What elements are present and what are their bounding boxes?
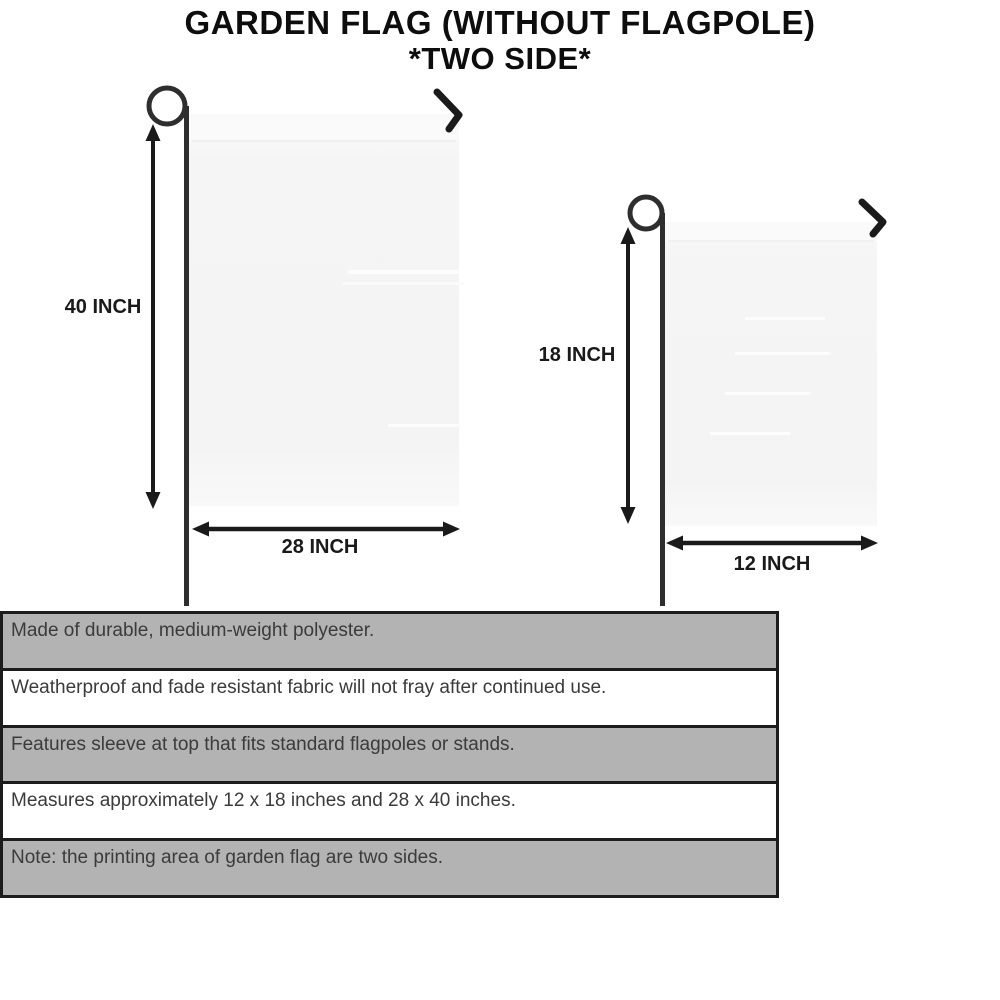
small-flag-canvas <box>665 222 877 526</box>
small-flag-height-arrow <box>621 227 636 524</box>
small-flag-width-arrow <box>666 536 878 551</box>
large-flag-assembly <box>146 88 466 606</box>
small-flag-width-label: 12 INCH <box>702 553 842 576</box>
small-flagpole-loop <box>630 197 662 229</box>
garden-flag-infographic: GARDEN FLAG (WITHOUT FLAGPOLE) *TWO SIDE… <box>0 0 1000 1000</box>
feature-row-weatherproof: Weatherproof and fade resistant fabric w… <box>3 671 776 728</box>
feature-row-note: Note: the printing area of garden flag a… <box>3 841 776 895</box>
small-flag-sleeve <box>665 222 877 242</box>
small-flag-assembly <box>621 197 884 606</box>
large-flag-sleeve <box>189 114 459 140</box>
feature-row-material: Made of durable, medium-weight polyester… <box>3 614 776 671</box>
feature-row-measurements: Measures approximately 12 x 18 inches an… <box>3 784 776 841</box>
large-flag-width-label: 28 INCH <box>250 536 390 559</box>
features-table: Made of durable, medium-weight polyester… <box>0 611 779 898</box>
small-flag-height-label: 18 INCH <box>517 344 637 367</box>
large-flagpole-loop <box>149 88 185 124</box>
large-flag-width-arrow <box>192 522 460 537</box>
feature-row-sleeve: Features sleeve at top that fits standar… <box>3 728 776 785</box>
large-flag-canvas <box>189 114 459 506</box>
large-flag-height-label: 40 INCH <box>58 296 148 319</box>
